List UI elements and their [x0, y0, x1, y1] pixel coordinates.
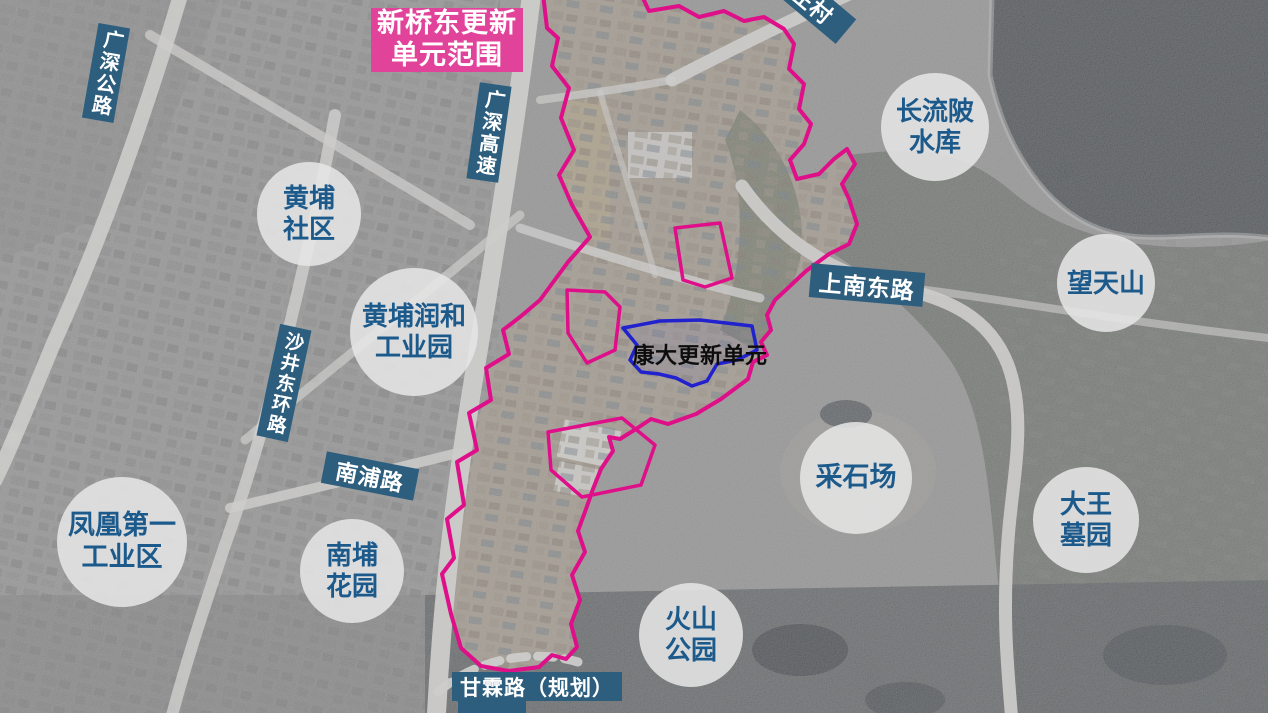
- area-label-huangpu-runhe-industrial-park: 黄埔润和 工业园: [350, 268, 478, 396]
- road-label-ganlin-road-planned: 甘霖路（规划）: [452, 672, 622, 701]
- area-label-nanpu-garden: 南埔 花园: [300, 519, 404, 623]
- map-title-banner: 新桥东更新 单元范围: [371, 8, 523, 72]
- kangda-unit-label: 康大更新单元: [630, 338, 770, 370]
- area-label-wangtianshan: 望天山: [1057, 234, 1155, 332]
- area-label-huangpu-community: 黄埔 社区: [257, 162, 361, 266]
- planning-map: 新桥东更新 单元范围 黄埔 社区 黄埔润和 工业园 凤凰第一 工业区 南埔 花园…: [0, 0, 1268, 713]
- area-label-changliupi-reservoir: 长流陂 水库: [881, 73, 989, 181]
- area-label-dawang-cemetery: 大王 墓园: [1033, 467, 1139, 573]
- area-label-fenghuang-first-industrial: 凤凰第一 工业区: [57, 477, 187, 607]
- area-label-quarry: 采石场: [800, 422, 912, 534]
- area-label-volcano-park: 火山 公园: [639, 583, 743, 687]
- road-label-clipped-bottom: [458, 701, 526, 713]
